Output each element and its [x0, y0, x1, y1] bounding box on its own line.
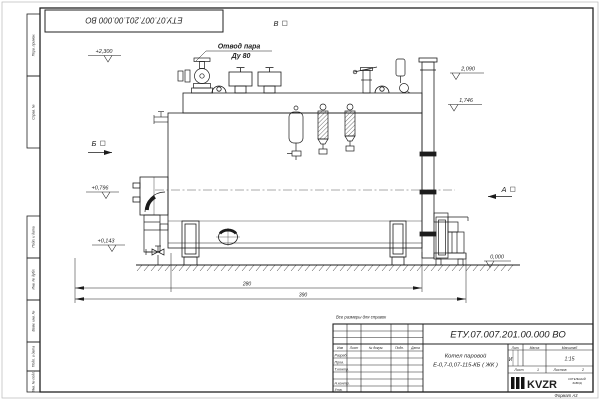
- reference-note: Все размеры для справок: [336, 315, 387, 320]
- col-data: Дата: [410, 346, 420, 350]
- row-prov: Пров.: [335, 360, 344, 364]
- view-labels: В Б А: [88, 19, 515, 199]
- svg-text:2,090: 2,090: [460, 67, 476, 73]
- svg-text:+2,300: +2,300: [96, 49, 114, 55]
- product-name-line2: Е-0,7-0,07-115-КБ ( ЖК ): [433, 363, 498, 369]
- logo-text: KVZR: [527, 379, 557, 391]
- drum-hatch-boxes: [229, 68, 281, 94]
- col-podp: Подп.: [395, 346, 404, 350]
- logo: KVZR КОТЕЛЬНЫЙ ЗАВОД: [511, 377, 586, 391]
- view-label-v: В: [273, 19, 278, 28]
- svg-text:+0,796: +0,796: [92, 186, 110, 192]
- drawing-sheet: Перв. примен. Справ. № Подп. и дата Инв.…: [0, 0, 600, 400]
- lifting-lugs: [212, 86, 389, 93]
- callout-line2: Ду 80: [231, 53, 251, 60]
- svg-text:0,000: 0,000: [490, 255, 505, 261]
- elevation-marks: +2,300 2,090 1,746 +0,796 +0,143 0,000: [86, 49, 511, 268]
- rear-duct: [419, 58, 437, 258]
- side-stamp-labels: Перв. примен. Справ. № Подп. и дата Инв.…: [32, 34, 36, 392]
- ground-line: [136, 265, 520, 271]
- dimension-280: 280: [75, 282, 422, 290]
- col-izm: Изм: [337, 346, 344, 350]
- svg-text:1,746: 1,746: [459, 98, 474, 104]
- svg-text:+0,143: +0,143: [98, 239, 116, 245]
- lit-header: Лит.: [511, 346, 520, 350]
- pressure-gauge: [396, 59, 410, 93]
- view-label-a: А: [500, 185, 506, 194]
- sheets-label: Листов: [552, 368, 566, 372]
- col-ndok: № докум.: [369, 346, 384, 350]
- side-cell-label: Взам. инв. №: [32, 310, 36, 331]
- mass-header: Масса: [530, 346, 540, 350]
- side-cell-label: Инв. № дубл.: [32, 269, 36, 290]
- col-list: Лист: [349, 346, 359, 350]
- elevation-2090: 2,090: [450, 67, 484, 80]
- logo-bar-icon: [516, 377, 520, 389]
- blueprint-page: Перв. примен. Справ. № Подп. и дата Инв.…: [0, 0, 600, 400]
- product-name-line1: Котел паровой: [445, 353, 487, 360]
- sheet-label: Лист: [513, 368, 523, 372]
- side-cell-label: Инв. № подл.: [32, 371, 36, 392]
- manhole: [216, 228, 240, 246]
- doc-number: ЕТУ.07.007.201.00.000 ВО: [450, 330, 566, 341]
- dimension-390: 390: [75, 293, 466, 301]
- sheets-value: 2: [581, 368, 584, 372]
- elevation-2300: +2,300: [88, 49, 121, 62]
- sheet-value: 1: [537, 368, 539, 372]
- scale-header: Масштаб: [562, 346, 578, 350]
- callout-line1: Отвод пара: [218, 43, 261, 51]
- safety-valve: [353, 67, 377, 93]
- lit-value: И: [509, 357, 513, 363]
- format-label: Формат А3: [555, 393, 579, 398]
- row-nkontr: Н.контр.: [335, 381, 350, 385]
- dimension-lines: 280 390: [75, 252, 466, 303]
- view-label-b: Б: [92, 139, 97, 148]
- scale-value: 1:15: [564, 357, 574, 363]
- burner-unit: [434, 213, 468, 265]
- svg-text:390: 390: [299, 293, 308, 299]
- side-cell-label: Справ. №: [32, 104, 36, 120]
- side-stamp-cells: [27, 14, 40, 392]
- side-cell-label: Подп. и дата: [32, 346, 36, 367]
- logo-sub2: ЗАВОД: [572, 381, 581, 385]
- front-lower-column: [144, 215, 168, 265]
- logo-bar-icon: [511, 377, 515, 389]
- row-razrab: Разраб.: [335, 353, 348, 357]
- steam-outlet-valve: [178, 58, 213, 93]
- elevation-0143: +0,143: [92, 239, 125, 252]
- front-box: [133, 177, 168, 215]
- top-stamp-number: ЕТУ.07.007.201.00.000 ВО: [85, 16, 182, 25]
- row-tkontr: Т.контр.: [335, 367, 350, 371]
- elevation-1746: 1,746: [448, 98, 482, 111]
- side-cell-label: Подп. и дата: [32, 226, 36, 247]
- row-utv: Утв.: [335, 388, 343, 392]
- boiler-side-view: [133, 58, 520, 271]
- water-column: [287, 106, 303, 160]
- boiler-shell: [168, 93, 422, 248]
- shell-side-valve: [154, 112, 168, 125]
- level-gauges: [318, 104, 355, 154]
- title-block-text: ЕТУ.07.007.201.00.000 ВО Котел паровой Е…: [335, 330, 586, 393]
- side-cell-label: Перв. примен.: [32, 34, 36, 57]
- logo-bar-icon: [521, 377, 525, 389]
- svg-text:280: 280: [242, 282, 252, 288]
- elevation-0796: +0,796: [86, 186, 119, 199]
